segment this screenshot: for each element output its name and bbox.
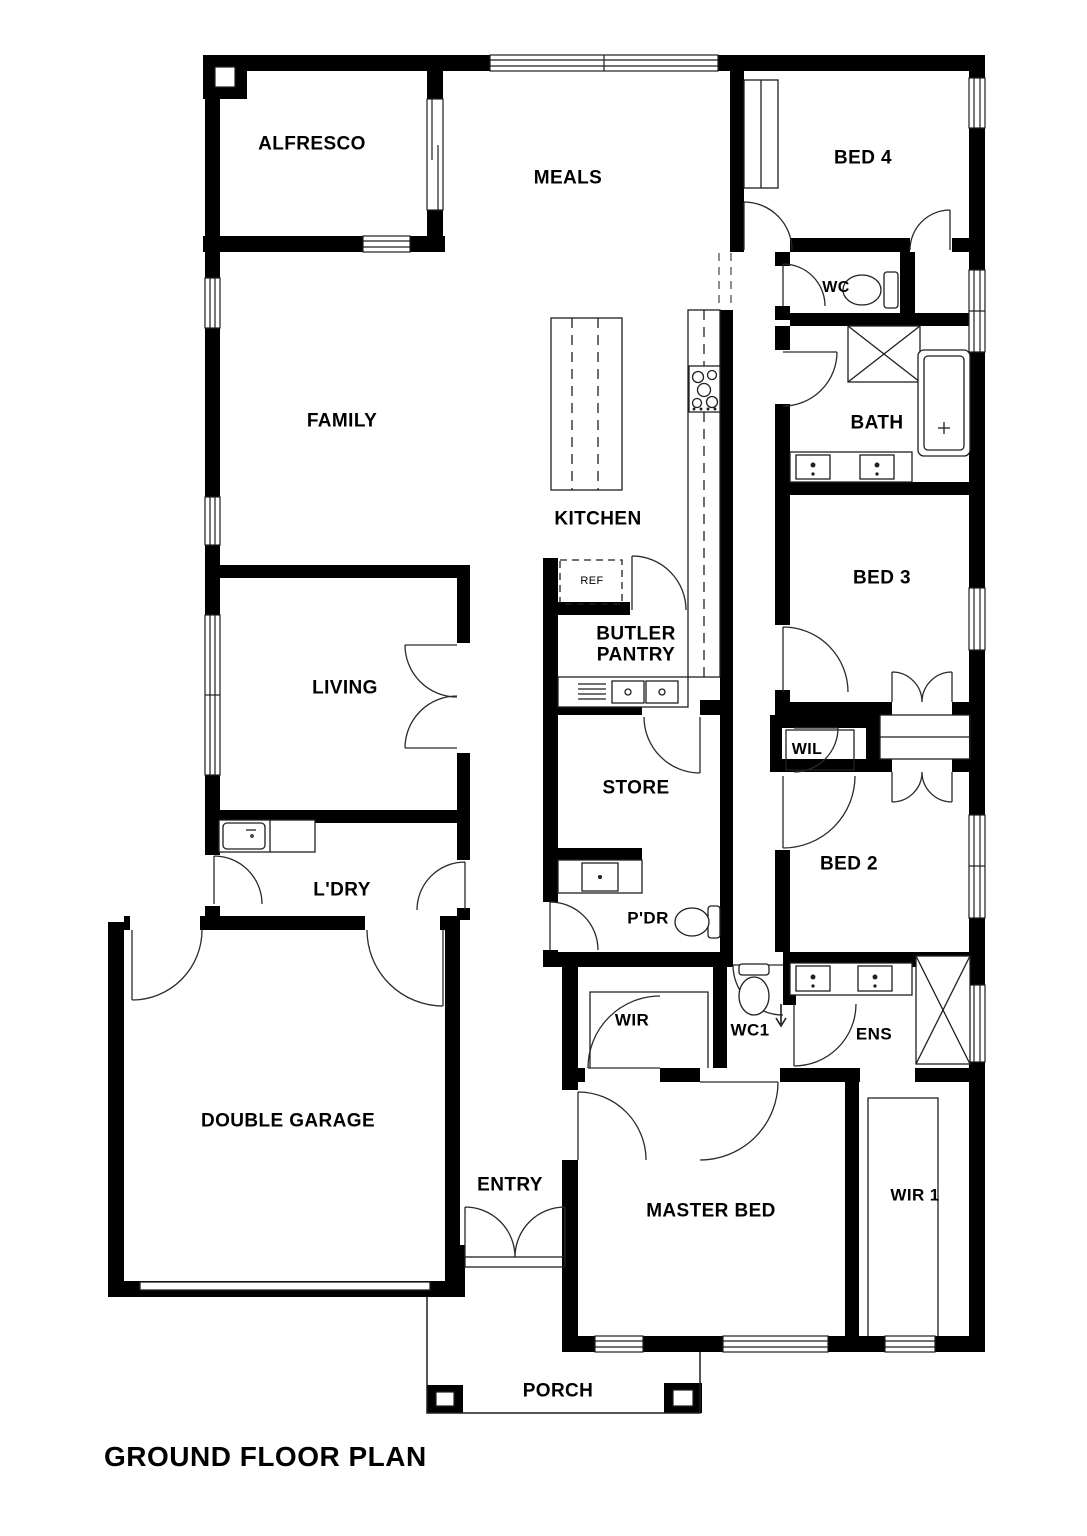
wir1-shelf: [868, 1098, 938, 1336]
kitchen-bench: [688, 310, 720, 677]
master-bed-window-2: [723, 1336, 828, 1352]
porch-pillar-inset-left: [436, 1392, 454, 1406]
laundry-tub: [219, 820, 315, 852]
ldry-external-door: [214, 856, 262, 904]
butler-sink-bench: [558, 677, 688, 707]
pdr-basin: [558, 860, 642, 893]
bathtub-icon: [918, 350, 970, 456]
master-bed-window-1: [595, 1336, 643, 1352]
bed2-window: [969, 815, 985, 918]
store-door: [644, 717, 700, 773]
bath-window: [969, 270, 985, 352]
alfresco-slider-window: [427, 99, 443, 210]
ldry-external-door-gap: [205, 855, 220, 906]
family-window-2: [205, 497, 220, 545]
robe-cavity: [880, 715, 970, 759]
floor-plan-drawing: [0, 0, 1087, 1536]
bed4-door: [744, 202, 792, 250]
bed4-robe-door: [910, 210, 950, 250]
plan-title: GROUND FLOOR PLAN: [104, 1441, 427, 1473]
garage-side-door: [132, 930, 202, 1000]
alfresco-bottom-window: [363, 236, 410, 252]
living-doors: [405, 645, 457, 748]
bed3-robe-doors: [892, 672, 952, 702]
kitchen-island-bench: [551, 318, 622, 490]
garage-side-door-gap: [130, 916, 200, 930]
pdr-toilet-icon: [675, 906, 720, 938]
floor-plan-canvas: ALFRESCOMEALSBED 4WCFAMILYBATHKITCHENBED…: [0, 0, 1087, 1536]
wc-toilet-icon: [843, 272, 898, 308]
ens-door: [794, 1004, 856, 1066]
wir-door: [588, 996, 660, 1068]
ens-window: [969, 985, 985, 1062]
ens-shower-icon: [916, 956, 970, 1064]
wc-door: [783, 264, 825, 306]
ldry-hall-door: [417, 862, 465, 910]
fridge-outline: [560, 560, 622, 604]
bed4-window: [969, 78, 985, 128]
porch-pillar-inset-right: [673, 1390, 693, 1406]
meals-window: [490, 55, 718, 71]
bed2-robe-doors: [892, 772, 952, 802]
wir1-window: [885, 1336, 935, 1352]
entry-double-doors: [465, 1207, 565, 1257]
family-window-1: [205, 278, 220, 328]
master-entry-door-gap: [562, 1090, 578, 1160]
bed4-robe: [744, 80, 778, 188]
bath-shower-icon: [848, 326, 920, 382]
garage-door: [140, 1282, 430, 1290]
bed2-door: [783, 776, 855, 848]
wc1-toilet-icon: [739, 964, 769, 1015]
column-inset: [215, 67, 235, 87]
wir-shelf: [590, 992, 708, 1068]
bath-door: [783, 352, 837, 406]
bed3-door: [783, 627, 848, 692]
bed3-window: [969, 588, 985, 650]
garage-internal-door-gap: [365, 916, 440, 930]
garage-internal-door: [367, 930, 443, 1006]
living-window: [205, 615, 220, 775]
master-entry-door: [578, 1092, 646, 1160]
entry-door-sill: [465, 1257, 565, 1267]
master-lobby-door: [700, 1082, 778, 1160]
bath-vanity: [790, 452, 912, 482]
cooktop-icon: [689, 366, 720, 412]
kitchen-butler-door: [632, 556, 686, 610]
ens-vanity: [790, 963, 912, 995]
